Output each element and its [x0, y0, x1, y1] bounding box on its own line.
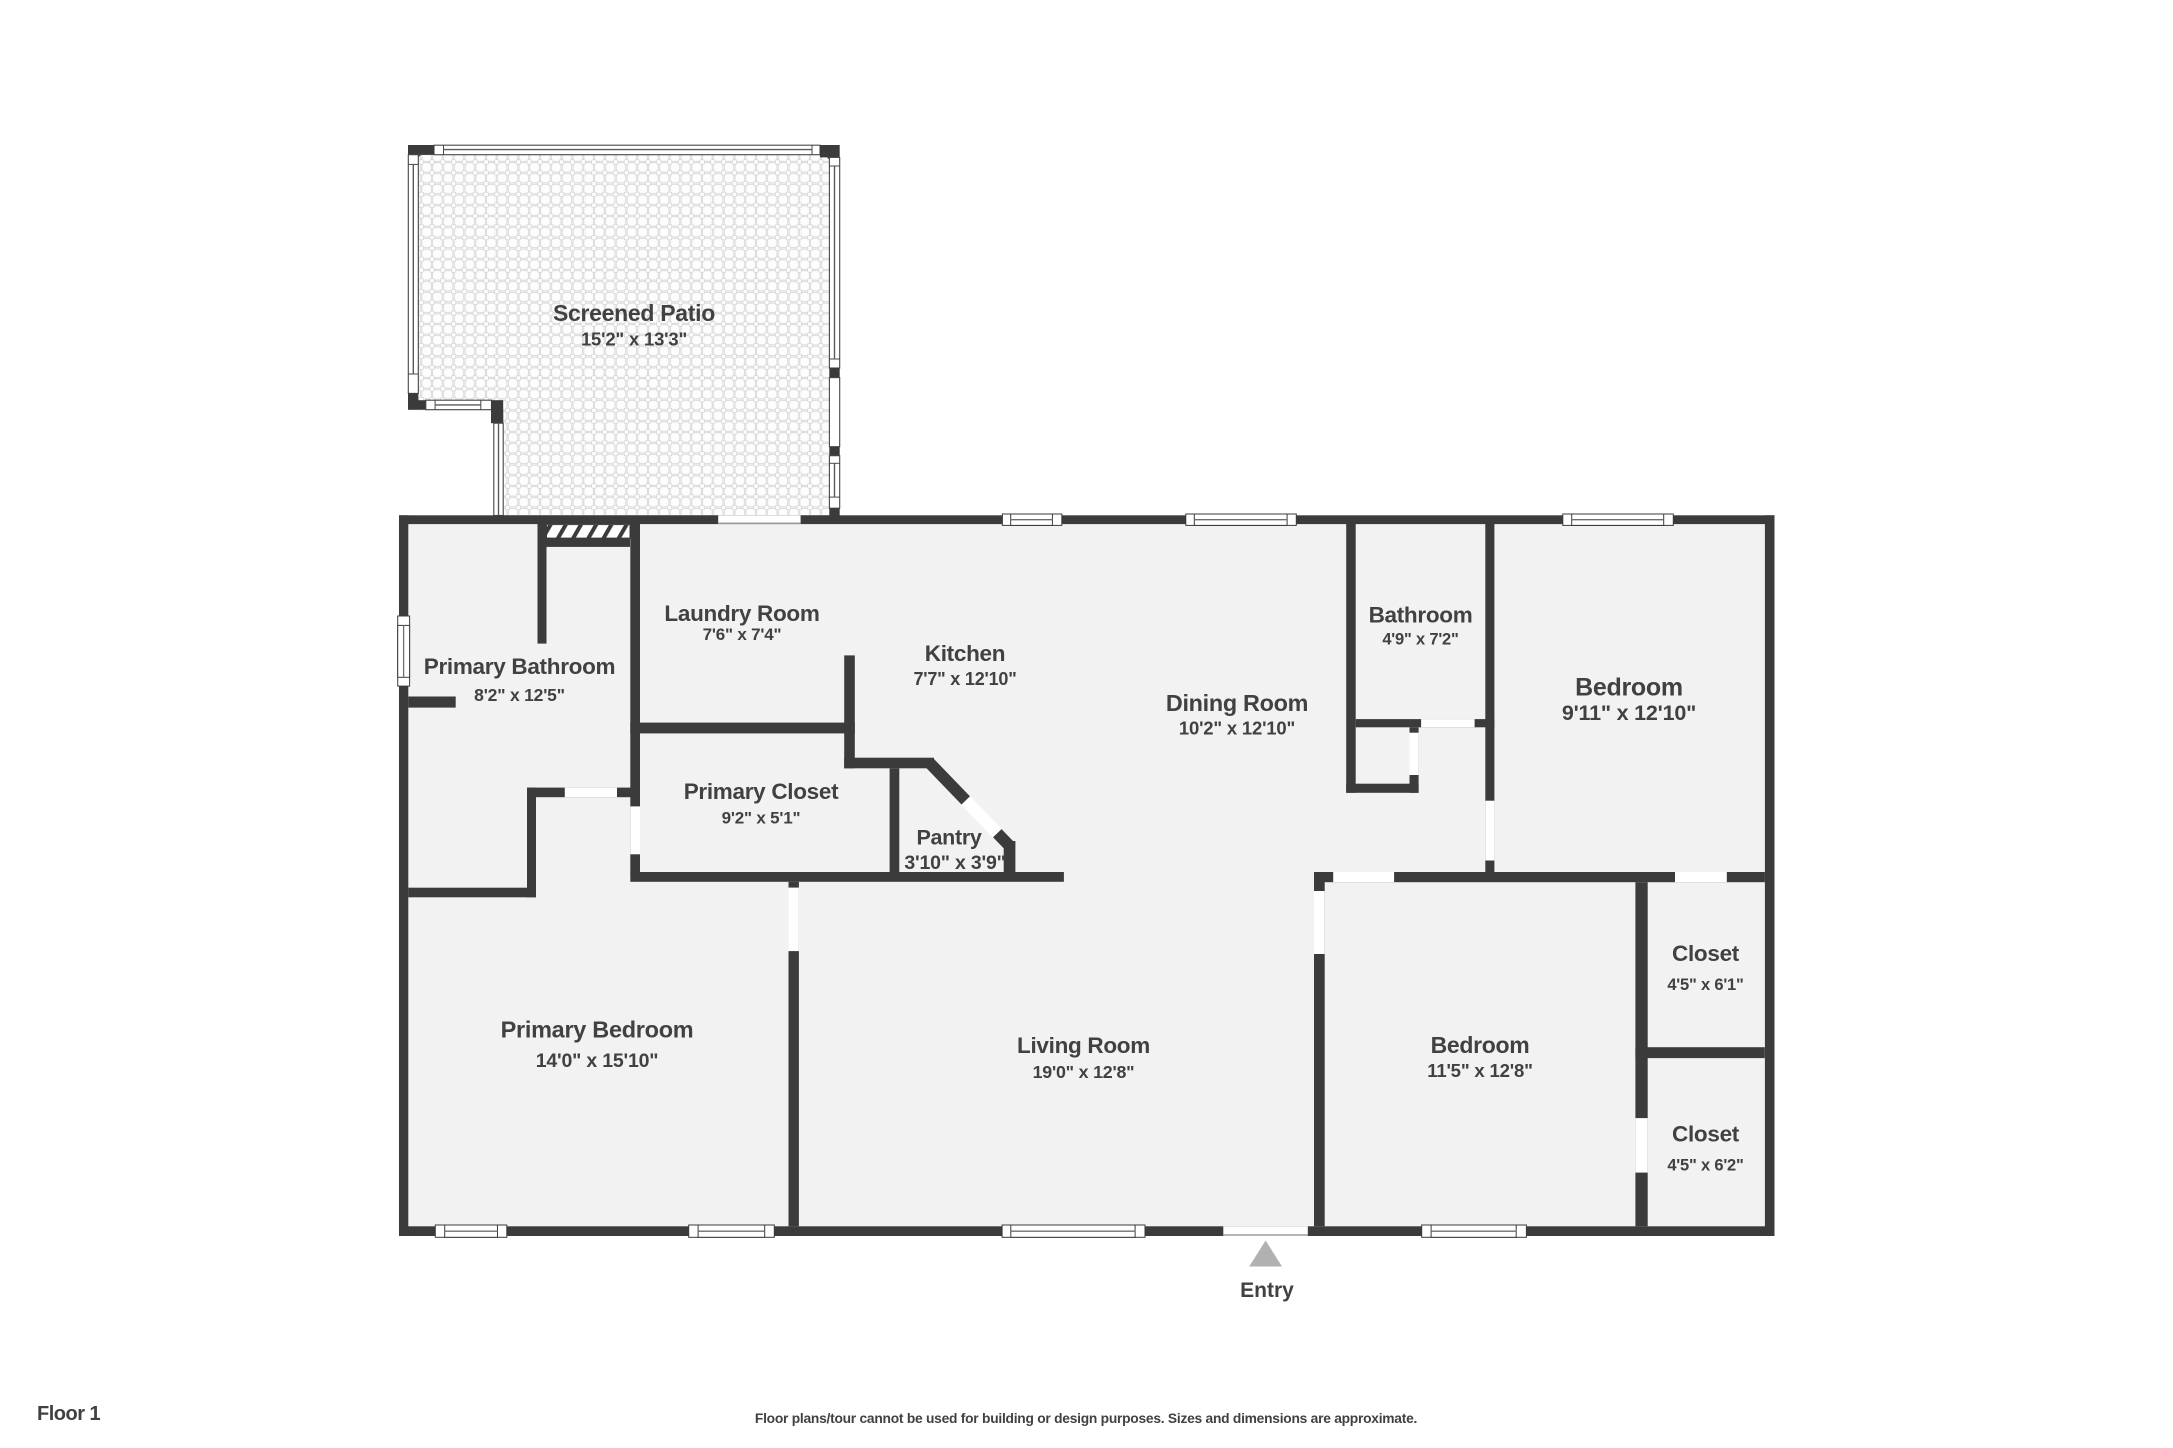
svg-text:4'9" x 7'2": 4'9" x 7'2"	[1382, 631, 1458, 649]
svg-text:Laundry Room: Laundry Room	[664, 601, 819, 626]
svg-text:7'6" x 7'4": 7'6" x 7'4"	[703, 625, 782, 644]
svg-text:9'11" x 12'10": 9'11" x 12'10"	[1562, 701, 1696, 725]
svg-text:10'2" x 12'10": 10'2" x 12'10"	[1179, 718, 1295, 739]
svg-text:4'5" x 6'2": 4'5" x 6'2"	[1667, 1157, 1743, 1175]
svg-text:11'5" x 12'8": 11'5" x 12'8"	[1427, 1060, 1533, 1081]
svg-text:4'5" x 6'1": 4'5" x 6'1"	[1667, 976, 1743, 994]
svg-text:Floor plans/tour cannot be use: Floor plans/tour cannot be used for buil…	[755, 1411, 1417, 1426]
svg-text:Closet: Closet	[1672, 1122, 1740, 1147]
svg-text:14'0" x 15'10": 14'0" x 15'10"	[536, 1050, 659, 1072]
svg-text:Pantry: Pantry	[916, 826, 981, 850]
svg-text:Kitchen: Kitchen	[925, 641, 1005, 666]
svg-text:Screened Patio: Screened Patio	[553, 300, 715, 326]
svg-text:Bedroom: Bedroom	[1575, 674, 1683, 702]
svg-text:Primary Closet: Primary Closet	[684, 779, 839, 804]
svg-text:Closet: Closet	[1672, 941, 1740, 966]
svg-text:Bathroom: Bathroom	[1369, 603, 1473, 628]
svg-text:9'2" x 5'1": 9'2" x 5'1"	[722, 809, 801, 828]
svg-text:Dining Room: Dining Room	[1166, 690, 1308, 716]
svg-text:Living Room: Living Room	[1017, 1033, 1150, 1058]
svg-text:Primary Bedroom: Primary Bedroom	[501, 1017, 694, 1043]
svg-text:3'10" x 3'9": 3'10" x 3'9"	[904, 852, 1005, 874]
svg-text:Entry: Entry	[1240, 1279, 1294, 1302]
svg-text:15'2" x 13'3": 15'2" x 13'3"	[581, 329, 687, 350]
svg-text:Bedroom: Bedroom	[1431, 1032, 1530, 1058]
svg-text:8'2" x 12'5": 8'2" x 12'5"	[474, 685, 565, 705]
svg-text:7'7" x 12'10": 7'7" x 12'10"	[913, 669, 1016, 689]
svg-text:Floor 1: Floor 1	[37, 1403, 101, 1425]
svg-text:19'0" x 12'8": 19'0" x 12'8"	[1033, 1062, 1135, 1082]
svg-text:Primary Bathroom: Primary Bathroom	[424, 654, 616, 679]
